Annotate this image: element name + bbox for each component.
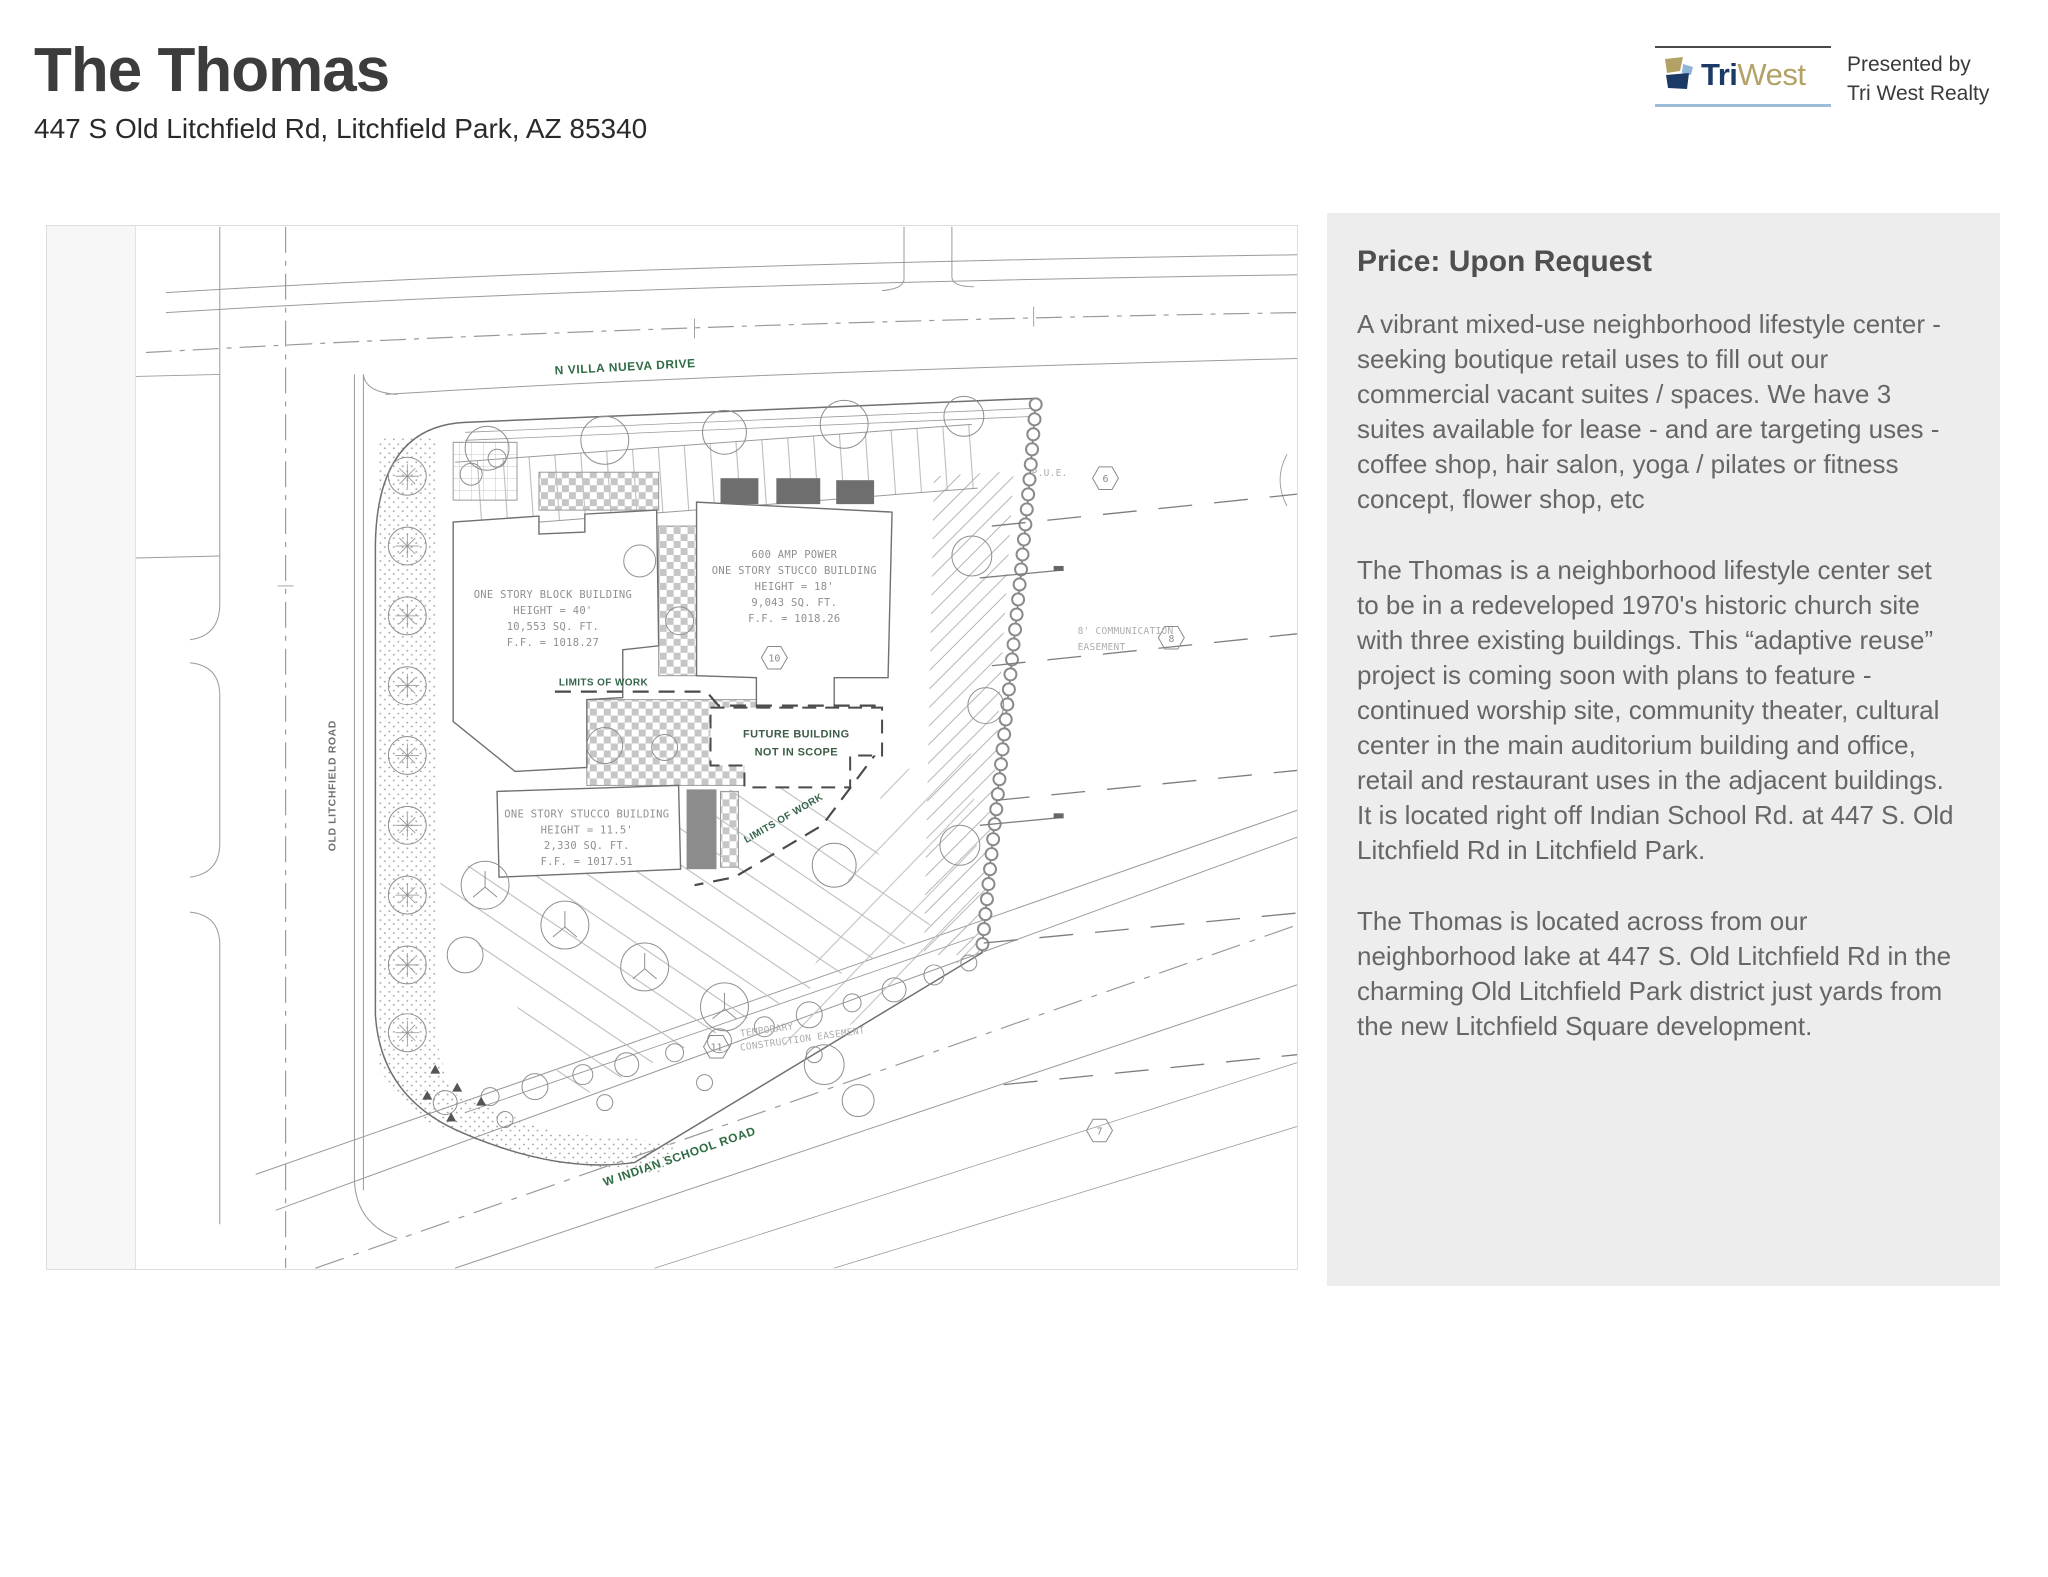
- future-building-label-1: FUTURE BUILDING: [743, 729, 850, 741]
- stucco-main-line4: 9,043 SQ. FT.: [751, 597, 837, 609]
- stucco-main-line3: HEIGHT = 18': [755, 581, 834, 593]
- presented-by-line2: Tri West Realty: [1847, 79, 1989, 108]
- easement-label-1: 8' COMMUNICATION: [1078, 626, 1174, 637]
- limits-of-work-label-1: LIMITS OF WORK: [559, 678, 649, 689]
- keynote-10: 10: [768, 654, 780, 665]
- listing-paragraph-3: The Thomas is located across from our ne…: [1357, 904, 1960, 1044]
- site-plan-svg: FUTURE BUILDING NOT IN SCOPE LIMITS OF W…: [136, 226, 1297, 1269]
- triwest-logo-text: TriWest: [1701, 57, 1805, 93]
- page-header: The Thomas 447 S Old Litchfield Rd, Litc…: [34, 38, 647, 145]
- triwest-logo-icon: [1659, 55, 1699, 95]
- easement-leaders: [980, 494, 1297, 1084]
- stipple-band-west: [379, 438, 435, 1036]
- property-address: 447 S Old Litchfield Rd, Litchfield Park…: [34, 113, 647, 145]
- stucco-small-line2: HEIGHT = 11.5': [541, 824, 633, 836]
- block-bldg-line2: HEIGHT = 40': [513, 605, 592, 617]
- presented-by: Presented by Tri West Realty: [1847, 46, 1989, 109]
- block-bldg-line1: ONE STORY BLOCK BUILDING: [474, 589, 632, 601]
- image-carousel-gutter: [47, 226, 136, 1269]
- block-bldg-line4: F.F. = 1018.27: [507, 637, 599, 649]
- stucco-small-line4: F.F. = 1017.51: [541, 856, 633, 868]
- keynote-11: 11: [710, 1043, 722, 1054]
- pue-label: P.U.E.: [1032, 468, 1068, 479]
- street-label-left: OLD LITCHFIELD ROAD: [327, 720, 338, 851]
- stucco-main-line5: F.F. = 1018.26: [748, 613, 840, 625]
- keynote-6: 6: [1102, 474, 1108, 485]
- keynote-7: 7: [1097, 1127, 1103, 1138]
- easement-label-2: EASEMENT: [1078, 642, 1126, 653]
- stucco-main-line2: ONE STORY STUCCO BUILDING: [712, 565, 877, 577]
- logo-west: West: [1737, 57, 1805, 92]
- logo-tri: Tri: [1701, 57, 1737, 92]
- street-label-top: N VILLA NUEVA DRIVE: [554, 356, 696, 377]
- branding-block: TriWest Presented by Tri West Realty: [1655, 46, 1989, 109]
- block-bldg-line3: 10,553 SQ. FT.: [507, 621, 599, 633]
- future-building-label-2: NOT IN SCOPE: [755, 746, 838, 758]
- page-title: The Thomas: [34, 38, 647, 103]
- listing-paragraph-2: The Thomas is a neighborhood lifestyle c…: [1357, 553, 1960, 868]
- site-plan-image[interactable]: FUTURE BUILDING NOT IN SCOPE LIMITS OF W…: [46, 225, 1298, 1270]
- listing-paragraph-1: A vibrant mixed-use neighborhood lifesty…: [1357, 307, 1960, 517]
- price-heading: Price: Upon Request: [1357, 245, 1960, 279]
- triwest-logo[interactable]: TriWest: [1655, 46, 1831, 107]
- garden-grid-nw: [453, 442, 517, 500]
- stucco-small-line1: ONE STORY STUCCO BUILDING: [504, 808, 669, 820]
- listing-details-panel: Price: Upon Request A vibrant mixed-use …: [1327, 213, 2000, 1286]
- presented-by-line1: Presented by: [1847, 50, 1989, 79]
- site-plan-drawing: FUTURE BUILDING NOT IN SCOPE LIMITS OF W…: [136, 226, 1297, 1269]
- stucco-main-line1: 600 AMP POWER: [751, 549, 837, 561]
- stucco-small-line3: 2,330 SQ. FT.: [544, 840, 630, 852]
